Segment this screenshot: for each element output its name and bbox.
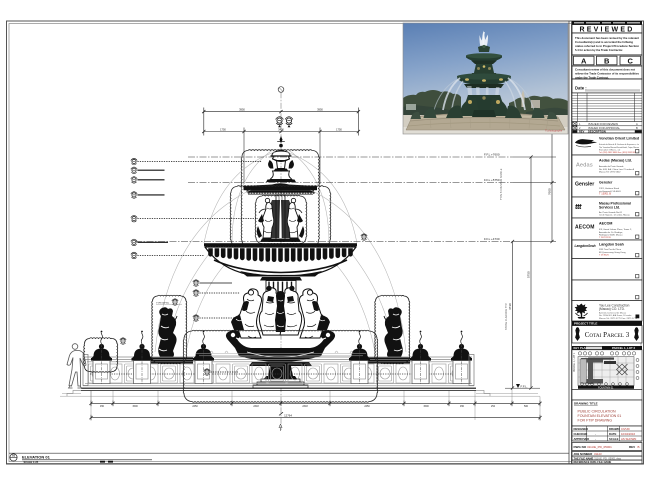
svg-text:2318: 2318: [253, 405, 259, 408]
svg-text:1500: 1500: [423, 405, 429, 408]
svg-text:DRAWN: DRAWN: [609, 427, 620, 431]
svg-text:01: 01: [12, 454, 16, 458]
svg-text:88 Queensway, Hong Kong: 88 Queensway, Hong Kong: [599, 252, 626, 254]
svg-text:PARCEL 1, LOT 1: PARCEL 1, LOT 1: [573, 352, 576, 372]
svg-text:FOR FTIP DRAWING: FOR FTIP DRAWING: [578, 419, 613, 423]
svg-text:500: 500: [524, 405, 529, 408]
svg-text:10/04/2016: 10/04/2016: [621, 432, 635, 436]
svg-text:No. 409, Edf. China Law 21 and: No. 409, Edf. China Law 21 andar A: [599, 168, 634, 171]
svg-text:DRAWING TITLE: DRAWING TITLE: [574, 401, 598, 405]
svg-text:REVIEWED: REVIEWED: [580, 27, 635, 34]
svg-text:STONE CLADDING TYP.: STONE CLADDING TYP.: [505, 303, 508, 330]
svg-text:F.F.L +4730: F.F.L +4730: [484, 237, 500, 241]
svg-text:Gensler: Gensler: [575, 182, 594, 188]
svg-text:B: B: [604, 57, 610, 66]
svg-text:B: B: [636, 126, 638, 130]
svg-text:No. 251A-301, AIA Tower, 18 an: No. 251A-301, AIA Tower, 18 andar: [599, 314, 632, 317]
svg-text:Av. Praia Grande No.61: Av. Praia Grande No.61: [599, 211, 623, 214]
svg-text:Avenida da Praia Grande: Avenida da Praia Grande: [599, 165, 624, 168]
svg-text:THE FILE NAME 311UE_PD_05001.d: THE FILE NAME 311UE_PD_05001.dwg: [574, 456, 622, 460]
svg-text:KEY PLAN: KEY PLAN: [574, 346, 588, 350]
svg-text:-: -: [595, 437, 596, 441]
svg-text:A: A: [581, 57, 587, 66]
svg-text:1500: 1500: [132, 405, 138, 408]
svg-text:AECOM: AECOM: [575, 224, 595, 230]
svg-text:CHECKED: CHECKED: [574, 432, 588, 436]
svg-text:Aedas (Macau) Ltd.: Aedas (Macau) Ltd.: [599, 159, 632, 163]
svg-text:450: 450: [100, 405, 105, 408]
svg-text:T 28722233: T 28722233: [599, 237, 611, 239]
svg-text:5750: 5750: [527, 271, 531, 278]
svg-text:2450: 2450: [192, 405, 198, 408]
svg-text:450: 450: [460, 405, 465, 408]
svg-text:PARCEL 1, LOT 2: PARCEL 1, LOT 2: [612, 346, 635, 350]
svg-text:COTAI PARCEL 3: COTAI PARCEL 3: [585, 331, 630, 339]
svg-text:FOUNTAIN ELEVATION 01: FOUNTAIN ELEVATION 01: [578, 414, 622, 418]
svg-text:(Macau) CO. LTD.: (Macau) CO. LTD.: [599, 307, 625, 311]
svg-text:ELEVATION 01: ELEVATION 01: [22, 455, 51, 460]
svg-text:1750: 1750: [336, 127, 342, 131]
svg-text:T 28 8625: T 28 8625: [599, 255, 610, 257]
svg-text:SCALE: SCALE: [609, 437, 619, 441]
svg-text:A: A: [636, 122, 638, 126]
svg-text:Aedas: Aedas: [576, 163, 593, 169]
svg-text:7600: 7600: [548, 188, 552, 195]
svg-text:PROJECT TITLE: PROJECT TITLE: [574, 322, 597, 326]
svg-text:8/F, Grand Lisboa Place, Tower: 8/F, Grand Lisboa Place, Tower 2,: [599, 228, 632, 231]
svg-text:C: C: [627, 57, 633, 66]
svg-text:Estrada da Baia de N. Senhora: Estrada da Baia de N. Senhora de Esperan…: [599, 143, 640, 146]
svg-text:FOUNTAIN 01: FOUNTAIN 01: [598, 386, 614, 389]
svg-text:LangdonSeah: LangdonSeah: [575, 244, 596, 248]
svg-text:311UE_PD_05001: 311UE_PD_05001: [587, 445, 612, 449]
svg-text:DWG NO: DWG NO: [574, 445, 587, 449]
svg-text:F.F.L +5750: F.F.L +5750: [484, 178, 500, 182]
svg-text:DATE: DATE: [609, 432, 617, 436]
svg-text:Date :: Date :: [575, 86, 587, 91]
svg-text:Executive Offices - L2: Executive Offices - L2: [599, 148, 621, 151]
svg-text:Venetian Orient Limited: Venetian Orient Limited: [599, 137, 639, 141]
svg-text:Circle Square, 12 andar, Macau: Circle Square, 12 andar, Macau: [599, 213, 631, 216]
svg-text:Avenida Comercial de Macau: Avenida Comercial de Macau: [599, 312, 627, 315]
svg-text:2450: 2450: [364, 405, 370, 408]
svg-text:31123: 31123: [594, 452, 602, 456]
svg-text:2/F/1, Harbour Road: 2/F/1, Harbour Road: [599, 187, 620, 190]
svg-text:Tel: (853) 2882 8888 Fax: (85: Tel: (853) 2882 8888 Fax: (853) 2882 888…: [599, 152, 638, 154]
svg-text:254: 254: [491, 405, 496, 408]
svg-text:TYPE B FOUNTAIN NOZZLE: TYPE B FOUNTAIN NOZZLE: [500, 168, 503, 200]
svg-text:T 15001 B: T 15001 B: [599, 192, 611, 196]
svg-text:CIVUD: CIVUD: [621, 427, 630, 431]
svg-text:3950: 3950: [317, 107, 323, 111]
svg-text:Rodrigues 600E, Macau: Rodrigues 600E, Macau: [599, 233, 623, 236]
svg-text:Macau Tel: 2875 5775 Fax:: Macau Tel: 2875 5775 Fax: 2875 5776: [599, 318, 638, 320]
svg-text:© photographe: © photographe: [545, 129, 563, 133]
svg-text:DESIGNED: DESIGNED: [574, 427, 589, 431]
svg-text:Services Ltd.: Services Ltd.: [599, 205, 620, 209]
svg-text:5.4 for action by the Trade Co: 5.4 for action by the Trade Contractor.: [575, 48, 623, 52]
svg-text:F.F.L +7600: F.F.L +7600: [484, 153, 500, 157]
svg-text:4730: 4730: [508, 303, 512, 310]
svg-text:The Venetian Macao-Resort-Hote: The Venetian Macao-Resort-Hotel, Taipa, …: [599, 146, 640, 149]
svg-text:PUBLIC CIRCULATION: PUBLIC CIRCULATION: [578, 409, 616, 413]
svg-text:APPROVED: APPROVED: [574, 437, 590, 441]
svg-text:ttt: ttt: [575, 202, 582, 211]
svg-text:Gensler: Gensler: [599, 181, 613, 185]
svg-text:3400: 3400: [278, 127, 284, 131]
svg-text:ISSUED FOR REVIEW: ISSUED FOR REVIEW: [588, 123, 619, 126]
svg-text:12764: 12764: [284, 414, 292, 418]
svg-text:JOB NUMBER: JOB NUMBER: [574, 452, 593, 456]
svg-text:B: B: [638, 445, 640, 449]
svg-text:REV: REV: [629, 445, 635, 449]
svg-text:-: -: [595, 432, 596, 436]
svg-text:2318: 2318: [302, 405, 308, 408]
svg-text:Avenida do. Dr. Rodrigo,: Avenida do. Dr. Rodrigo,: [599, 231, 623, 234]
svg-text:Langdon Seah: Langdon Seah: [599, 243, 624, 247]
svg-text:Macau Tel: 2871 5622: Macau Tel: 2871 5622: [599, 171, 621, 173]
svg-text:3950: 3950: [239, 107, 245, 111]
svg-text:F.F.L.: F.F.L.: [521, 385, 528, 389]
svg-text:AECOM: AECOM: [599, 222, 612, 226]
svg-text:AS SHOWN: AS SHOWN: [621, 437, 636, 441]
svg-text:1750: 1750: [220, 127, 226, 131]
